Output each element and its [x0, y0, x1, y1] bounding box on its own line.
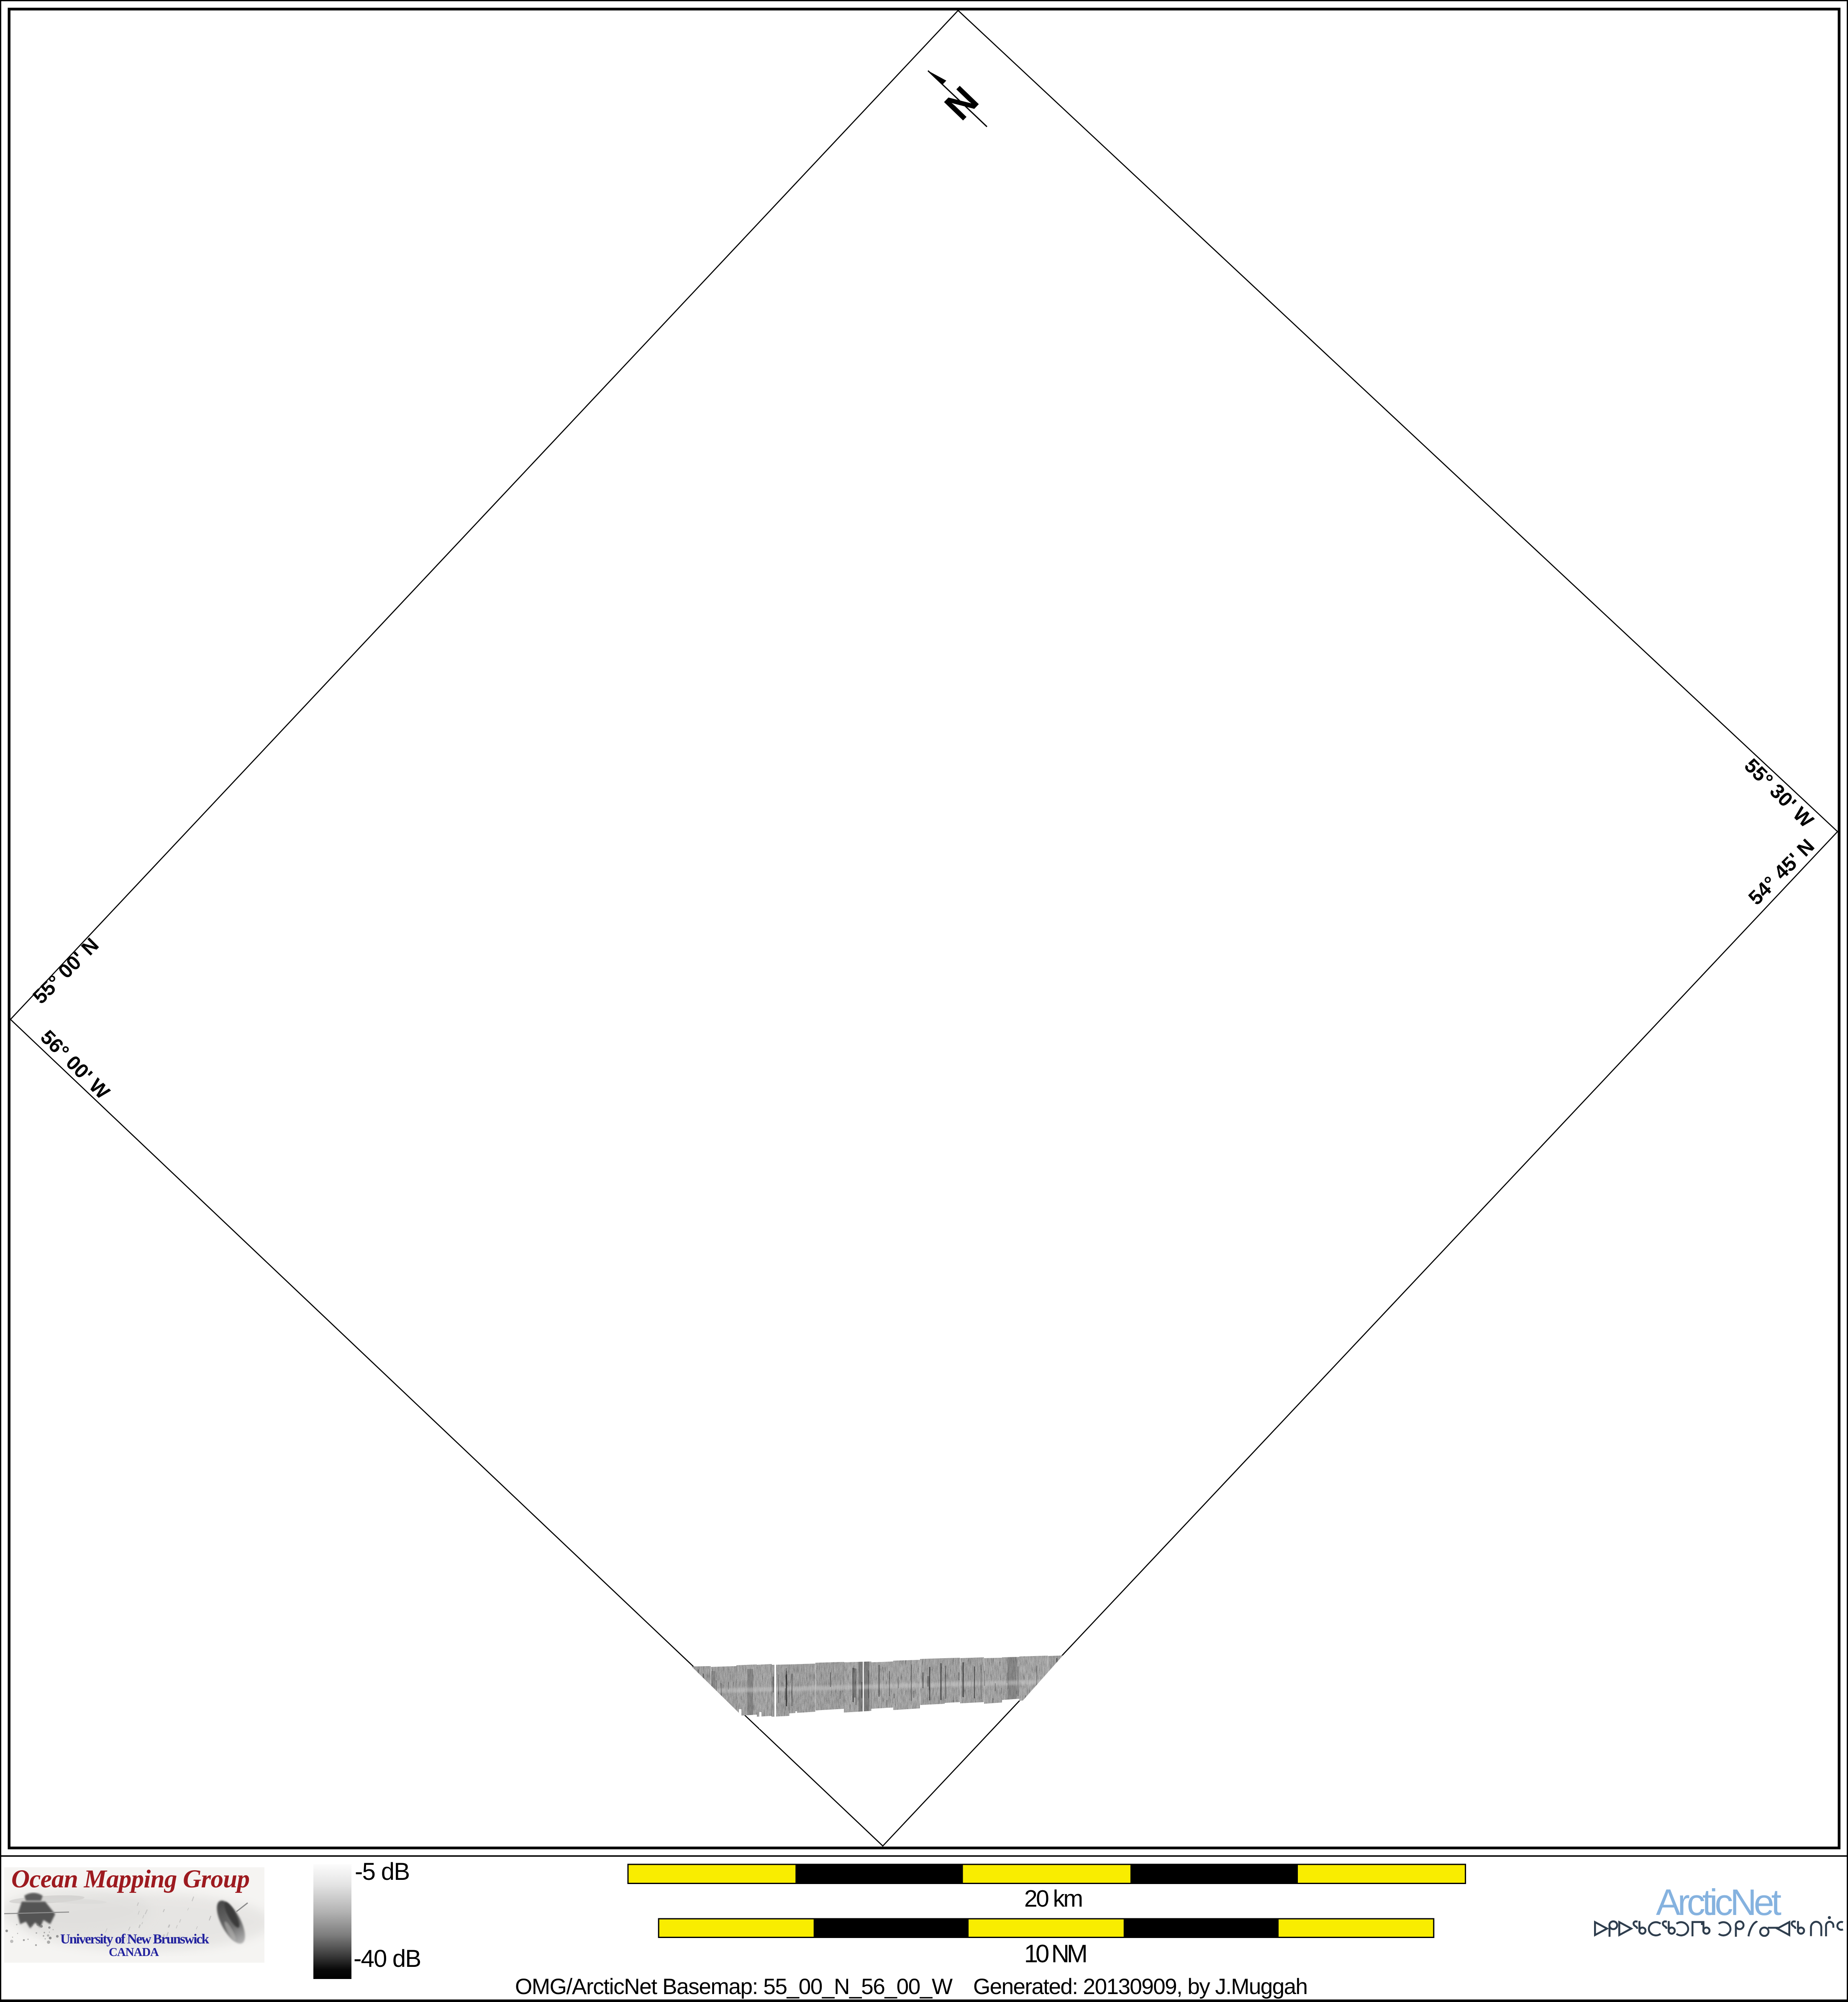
svg-text:Ocean Mapping Group: Ocean Mapping Group: [11, 1865, 250, 1893]
svg-text:University of New Brunswick: University of New Brunswick: [60, 1932, 210, 1947]
svg-text:-5 dB: -5 dB: [355, 1858, 410, 1885]
svg-text:OMG/ArcticNet Basemap: 55_00_N: OMG/ArcticNet Basemap: 55_00_N_56_00_W: [515, 1974, 953, 1999]
svg-text:20 km: 20 km: [1024, 1885, 1083, 1912]
svg-text:10 NM: 10 NM: [1024, 1940, 1088, 1968]
svg-text:ArcticNet: ArcticNet: [1656, 1882, 1781, 1923]
svg-text:Generated: 20130909, by J.Mugg: Generated: 20130909, by J.Muggah: [973, 1974, 1308, 1999]
svg-text:CANADA: CANADA: [109, 1946, 159, 1959]
svg-text:-40 dB: -40 dB: [354, 1945, 421, 1972]
